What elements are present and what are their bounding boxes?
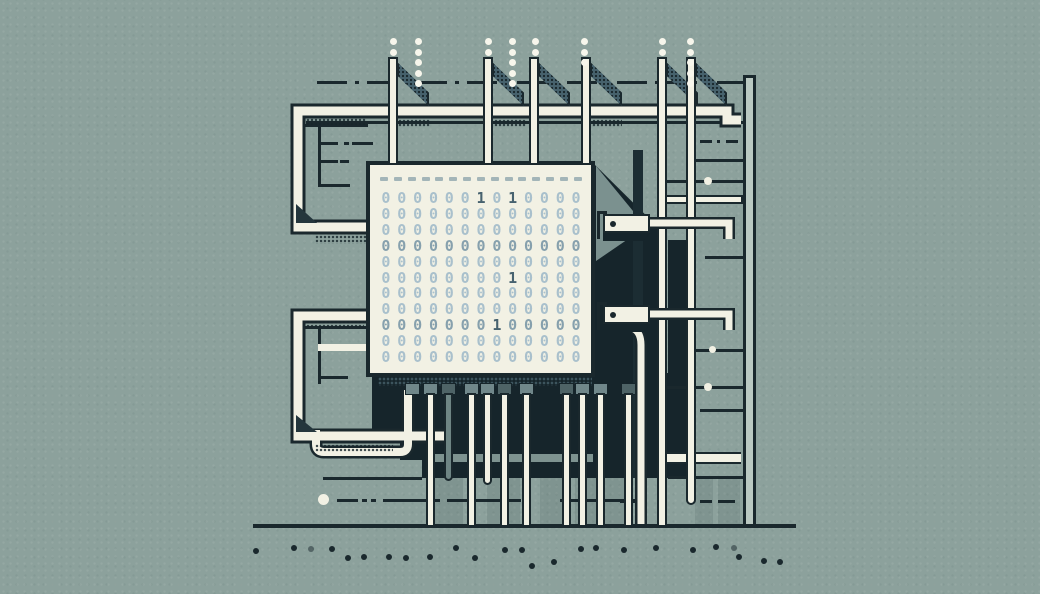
chip-header-dash <box>574 177 582 181</box>
pipe-fold <box>296 415 317 432</box>
bottom-pin <box>483 393 492 485</box>
binary-digit: 0 <box>410 255 426 270</box>
binary-row: 0000001010000 <box>378 191 584 206</box>
hatch-band <box>306 118 366 126</box>
binary-digit: 0 <box>378 239 394 254</box>
ground-dot <box>253 548 259 554</box>
loop1-tick <box>318 160 338 163</box>
ground-dot <box>621 547 627 553</box>
chip-header-dashes <box>380 177 582 181</box>
ground-dot <box>578 546 584 552</box>
binary-digit: 0 <box>457 271 473 286</box>
chip-header-dash <box>435 177 443 181</box>
binary-digit: 0 <box>489 271 505 286</box>
ladder-rung <box>695 159 743 162</box>
guide-dot <box>390 49 397 56</box>
binary-digit: 0 <box>394 334 410 349</box>
binary-digit: 0 <box>410 302 426 317</box>
binary-digit: 0 <box>552 350 568 365</box>
pin-flag-edge <box>538 62 570 106</box>
binary-digit: 0 <box>457 255 473 270</box>
binary-digit: 0 <box>441 223 457 238</box>
binary-row: 0000000000000 <box>378 207 584 222</box>
binary-row: 0000000000000 <box>378 255 584 270</box>
binary-digit: 0 <box>521 223 537 238</box>
binary-digit: 0 <box>378 350 394 365</box>
binary-digit: 0 <box>426 334 442 349</box>
top-pin <box>483 57 493 165</box>
binary-digit: 0 <box>441 334 457 349</box>
binary-digit: 0 <box>457 286 473 301</box>
binary-digit: 0 <box>410 207 426 222</box>
ground-dot <box>329 546 335 552</box>
binary-digit: 0 <box>426 286 442 301</box>
binary-digit: 0 <box>568 239 584 254</box>
loop1-tick <box>352 142 373 145</box>
binary-digit: 0 <box>568 318 584 333</box>
binary-digit: 0 <box>394 223 410 238</box>
ground-dot <box>551 559 557 565</box>
binary-digit: 0 <box>426 302 442 317</box>
binary-digit: 0 <box>536 255 552 270</box>
dash-segment <box>371 499 376 502</box>
binary-digit: 0 <box>441 255 457 270</box>
guide-dot <box>485 38 492 45</box>
binary-digit: 0 <box>489 302 505 317</box>
binary-digit: 0 <box>441 302 457 317</box>
binary-digit: 0 <box>505 207 521 222</box>
guide-dot <box>687 49 694 56</box>
binary-digit: 0 <box>378 286 394 301</box>
ground-dot <box>453 545 459 551</box>
binary-digit: 0 <box>489 239 505 254</box>
bottom-pin <box>500 393 509 527</box>
binary-digit: 0 <box>441 207 457 222</box>
binary-digit: 1 <box>473 191 489 206</box>
binary-digit: 0 <box>521 350 537 365</box>
binary-digit: 0 <box>410 318 426 333</box>
bottom-pin <box>596 393 605 527</box>
binary-digit: 0 <box>536 239 552 254</box>
binary-digit: 0 <box>552 334 568 349</box>
chip-header-dash <box>394 177 402 181</box>
binary-digit: 0 <box>568 191 584 206</box>
binary-digit: 0 <box>410 334 426 349</box>
hatch-band <box>315 444 393 452</box>
binary-digit: 0 <box>426 255 442 270</box>
ladder-rung <box>705 256 743 259</box>
binary-digit: 0 <box>568 302 584 317</box>
binary-digit: 0 <box>552 271 568 286</box>
binary-digit: 0 <box>441 286 457 301</box>
binary-digit: 0 <box>410 350 426 365</box>
guide-dot <box>415 59 422 66</box>
ground-dot <box>519 547 525 553</box>
binary-digit: 0 <box>536 286 552 301</box>
ground-dot <box>593 545 599 551</box>
binary-digit: 0 <box>473 334 489 349</box>
binary-digit: 0 <box>394 239 410 254</box>
binary-digit: 0 <box>568 271 584 286</box>
binary-row: 0000000000000 <box>378 223 584 238</box>
shade-column <box>718 478 740 524</box>
pin-flag-edge <box>590 62 622 106</box>
ground-dot <box>345 555 351 561</box>
binary-digit: 0 <box>394 318 410 333</box>
binary-digit: 0 <box>457 239 473 254</box>
pin-flag-edge <box>492 62 524 106</box>
signal-dot <box>704 383 712 391</box>
binary-row: 0000000000000 <box>378 302 584 317</box>
binary-digit: 0 <box>457 302 473 317</box>
top-pin <box>657 57 667 527</box>
hatch-smudge <box>398 119 430 127</box>
binary-digit: 0 <box>457 318 473 333</box>
loop1-tick <box>340 160 349 163</box>
top-pin <box>581 57 591 165</box>
binary-digit: 0 <box>521 255 537 270</box>
binary-digit: 0 <box>426 191 442 206</box>
loop1-inner-vert <box>318 124 321 186</box>
binary-digit: 0 <box>505 255 521 270</box>
binary-digit: 0 <box>441 350 457 365</box>
pin-flag-edge <box>695 62 727 106</box>
chip-header-dash <box>380 177 388 181</box>
white-rung <box>663 195 743 204</box>
loop1-tick-dot <box>344 142 349 145</box>
chip-header-dash <box>422 177 430 181</box>
binary-digit: 0 <box>378 271 394 286</box>
binary-digit: 0 <box>394 350 410 365</box>
binary-row: 0000000000000 <box>378 286 584 301</box>
binary-digit: 0 <box>505 302 521 317</box>
guide-dot <box>509 70 516 77</box>
binary-digit: 0 <box>410 286 426 301</box>
binary-digit: 0 <box>489 223 505 238</box>
chip-header-dash <box>546 177 554 181</box>
binary-digit: 1 <box>505 271 521 286</box>
guide-dot <box>509 80 516 87</box>
dash-segment <box>362 499 367 502</box>
guide-dot <box>687 70 694 77</box>
guide-dot <box>532 38 539 45</box>
binary-digit: 0 <box>521 207 537 222</box>
binary-digit: 1 <box>489 318 505 333</box>
guide-dot <box>509 38 516 45</box>
binary-digit: 0 <box>521 191 537 206</box>
ground-dot <box>361 554 367 560</box>
binary-digit: 0 <box>505 223 521 238</box>
binary-row: 0000000000000 <box>378 350 584 365</box>
ladder-rung <box>700 409 743 412</box>
binary-digit: 0 <box>489 207 505 222</box>
binary-digit: 0 <box>378 255 394 270</box>
binary-digit: 0 <box>457 191 473 206</box>
binary-digit: 0 <box>552 318 568 333</box>
binary-digit: 0 <box>536 350 552 365</box>
bottom-pin <box>426 393 435 527</box>
binary-digit: 0 <box>473 239 489 254</box>
binary-digit: 0 <box>378 334 394 349</box>
binary-digit: 0 <box>536 223 552 238</box>
binary-digit: 0 <box>394 191 410 206</box>
binary-digit: 0 <box>536 334 552 349</box>
binary-digit: 0 <box>473 286 489 301</box>
shade-column <box>695 478 713 524</box>
binary-digit: 0 <box>378 207 394 222</box>
ground-dot <box>529 563 535 569</box>
binary-digit: 0 <box>521 318 537 333</box>
ground-dot <box>736 554 742 560</box>
binary-digit: 0 <box>536 271 552 286</box>
binary-digit: 0 <box>536 318 552 333</box>
binary-digit: 0 <box>568 350 584 365</box>
guide-dot <box>509 59 516 66</box>
guide-dot <box>581 49 588 56</box>
ground-dot <box>291 545 297 551</box>
chip-header-dash <box>408 177 416 181</box>
binary-digit: 0 <box>426 223 442 238</box>
bottom-pin <box>444 393 453 481</box>
binary-digit: 0 <box>521 286 537 301</box>
ground-dot <box>731 545 737 551</box>
binary-digit: 0 <box>426 350 442 365</box>
binary-row: 0000000000000 <box>378 334 584 349</box>
binary-digit: 0 <box>552 286 568 301</box>
chip-header-dash <box>491 177 499 181</box>
binary-digit: 0 <box>473 255 489 270</box>
guide-dot <box>509 49 516 56</box>
bottom-pin <box>624 393 633 527</box>
binary-digit: 0 <box>505 318 521 333</box>
binary-row: 0000000000000 <box>378 239 584 254</box>
bottom-pin <box>562 393 571 527</box>
tab1-underside <box>603 233 650 241</box>
binary-digit: 0 <box>410 239 426 254</box>
binary-digit: 0 <box>394 302 410 317</box>
binary-digit: 0 <box>536 207 552 222</box>
signal-dot <box>704 177 712 185</box>
tab2-underside <box>603 324 650 332</box>
binary-grid: 0000001010000000000000000000000000000000… <box>378 191 584 371</box>
io-pad <box>405 383 420 395</box>
chip-header-dash <box>505 177 513 181</box>
dash-segment <box>337 499 358 502</box>
binary-digit: 0 <box>489 286 505 301</box>
shade-column <box>433 478 463 524</box>
binary-digit: 0 <box>489 350 505 365</box>
binary-digit: 0 <box>505 286 521 301</box>
binary-digit: 0 <box>552 302 568 317</box>
tab2-bracket <box>597 302 600 330</box>
binary-digit: 0 <box>552 223 568 238</box>
binary-digit: 0 <box>426 318 442 333</box>
guide-dot <box>687 59 694 66</box>
ground-dot <box>690 547 696 553</box>
ground-dot <box>502 547 508 553</box>
binary-digit: 0 <box>521 271 537 286</box>
binary-digit: 0 <box>378 223 394 238</box>
guide-dot <box>415 38 422 45</box>
bottom-pin <box>522 393 531 527</box>
guide-dot <box>659 49 666 56</box>
rail <box>743 75 756 527</box>
guide-dot <box>390 38 397 45</box>
binary-digit: 0 <box>568 223 584 238</box>
guide-dot <box>532 49 539 56</box>
binary-digit: 0 <box>426 239 442 254</box>
binary-digit: 0 <box>441 318 457 333</box>
binary-digit: 0 <box>505 239 521 254</box>
binary-row: 0000000100000 <box>378 318 584 333</box>
dash-segment <box>323 477 422 480</box>
ground-dot <box>403 555 409 561</box>
binary-digit: 0 <box>521 334 537 349</box>
binary-digit: 0 <box>426 207 442 222</box>
signal-dot-left <box>318 494 329 505</box>
binary-digit: 0 <box>473 350 489 365</box>
ground-dot <box>472 555 478 561</box>
binary-digit: 1 <box>505 191 521 206</box>
tab1-dot <box>610 221 616 227</box>
binary-digit: 0 <box>410 223 426 238</box>
binary-digit: 0 <box>505 350 521 365</box>
binary-digit: 0 <box>410 271 426 286</box>
bottom-pin <box>467 393 476 527</box>
hatch-band <box>306 320 364 328</box>
binary-digit: 0 <box>394 207 410 222</box>
guide-dot <box>415 70 422 77</box>
binary-digit: 0 <box>568 255 584 270</box>
ladder-rung <box>695 349 743 352</box>
binary-digit: 0 <box>552 239 568 254</box>
chip-side-stripe <box>318 344 370 351</box>
ground-dot <box>653 545 659 551</box>
chip-header-dash <box>518 177 526 181</box>
binary-digit: 0 <box>568 334 584 349</box>
ground-dot <box>386 554 392 560</box>
memory-chip: 0000001010000000000000000000000000000000… <box>366 161 595 377</box>
binary-digit: 0 <box>473 207 489 222</box>
tab1-bracket <box>597 211 600 239</box>
pipe-fold <box>296 204 317 223</box>
binary-digit: 0 <box>568 207 584 222</box>
tab2-dot <box>610 312 616 318</box>
ground-dot <box>777 559 783 565</box>
ground-dot <box>713 544 719 550</box>
binary-digit: 0 <box>521 302 537 317</box>
binary-digit: 0 <box>457 223 473 238</box>
chip-header-dash <box>532 177 540 181</box>
binary-digit: 0 <box>473 318 489 333</box>
binary-digit: 0 <box>552 207 568 222</box>
chip-header-dash <box>477 177 485 181</box>
binary-digit: 0 <box>378 302 394 317</box>
top-pin <box>529 57 539 165</box>
binary-digit: 0 <box>473 223 489 238</box>
guide-dot <box>415 80 422 87</box>
binary-digit: 0 <box>394 255 410 270</box>
binary-digit: 0 <box>521 239 537 254</box>
binary-digit: 0 <box>378 191 394 206</box>
binary-digit: 0 <box>505 334 521 349</box>
loop1-tick <box>318 184 350 187</box>
binary-digit: 0 <box>457 350 473 365</box>
chip-header-dash <box>560 177 568 181</box>
ground-dot <box>308 546 314 552</box>
binary-digit: 0 <box>552 255 568 270</box>
top-pin <box>388 57 398 165</box>
signal-dot <box>709 346 716 353</box>
binary-digit: 0 <box>489 191 505 206</box>
binary-digit: 0 <box>378 318 394 333</box>
binary-digit: 0 <box>441 191 457 206</box>
binary-digit: 0 <box>441 239 457 254</box>
hatch-smudge <box>494 119 526 127</box>
chip-header-dash <box>449 177 457 181</box>
binary-digit: 0 <box>489 334 505 349</box>
guide-dot <box>581 59 588 66</box>
circuit-illustration: 0000001010000000000000000000000000000000… <box>0 0 1040 594</box>
binary-digit: 0 <box>552 191 568 206</box>
guide-dot <box>659 38 666 45</box>
guide-dot <box>485 49 492 56</box>
bottom-pin <box>578 393 587 527</box>
loop2-tick <box>318 376 348 379</box>
guide-dot <box>687 80 694 87</box>
top-pin <box>686 57 696 505</box>
shadow-column <box>668 240 686 477</box>
guide-dot <box>415 49 422 56</box>
binary-digit: 0 <box>457 334 473 349</box>
dash-dot-rung <box>700 140 743 143</box>
binary-digit: 0 <box>410 191 426 206</box>
binary-digit: 0 <box>473 302 489 317</box>
binary-digit: 0 <box>536 191 552 206</box>
binary-digit: 0 <box>568 286 584 301</box>
binary-digit: 0 <box>394 271 410 286</box>
ground-dot <box>427 554 433 560</box>
binary-digit: 0 <box>394 286 410 301</box>
hatch-smudge <box>592 119 622 127</box>
loop1-tick <box>318 142 338 145</box>
binary-digit: 0 <box>441 271 457 286</box>
chip-header-dash <box>463 177 471 181</box>
binary-digit: 0 <box>426 271 442 286</box>
binary-digit: 0 <box>457 207 473 222</box>
ground-dot <box>761 558 767 564</box>
guide-dot <box>581 38 588 45</box>
binary-digit: 0 <box>473 271 489 286</box>
binary-row: 0000000010000 <box>378 271 584 286</box>
pin-flag-edge <box>397 62 429 106</box>
guide-dot <box>687 38 694 45</box>
binary-digit: 0 <box>489 255 505 270</box>
binary-digit: 0 <box>536 302 552 317</box>
